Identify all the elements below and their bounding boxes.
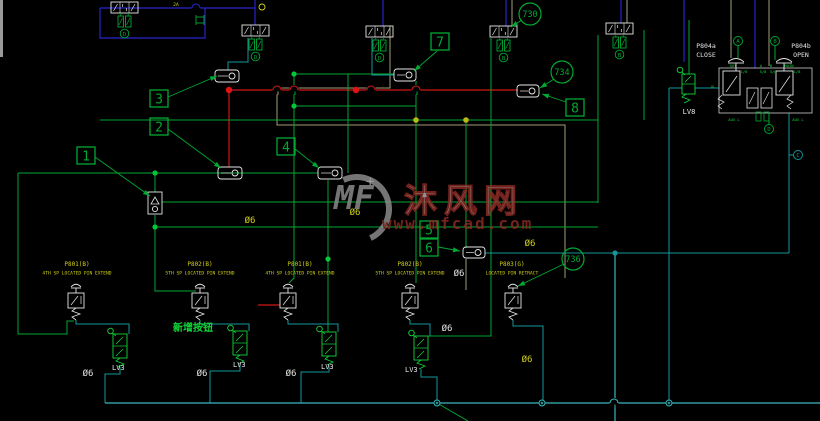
callout-leader xyxy=(168,129,221,168)
wire-segment xyxy=(369,28,373,35)
assembly-spring xyxy=(787,95,793,109)
callout-arrowhead xyxy=(312,162,319,168)
station-code: P802(B) xyxy=(187,261,212,268)
valve-port-letter: B xyxy=(618,53,622,59)
wire-tan-0 xyxy=(277,26,565,278)
assembly-port-label: AUX L xyxy=(728,117,740,122)
pushbutton-valve-body xyxy=(280,293,296,308)
station-description: 5TH SP LOCATED PIN EXTEND xyxy=(375,271,444,277)
pipe-diameter-label: Ø6 xyxy=(83,368,94,379)
note-new-button: 新增按钮 xyxy=(173,321,213,334)
pushbutton-cap xyxy=(283,284,293,287)
assembly-frame xyxy=(719,68,812,113)
wire-blue-0 xyxy=(100,8,205,38)
wire-segment xyxy=(262,27,266,34)
callout-number: 3 xyxy=(155,93,163,108)
callout-number: 2 xyxy=(155,121,163,136)
callout-number: 6 xyxy=(425,242,433,257)
port-letter: A xyxy=(736,39,740,45)
wire-segment xyxy=(245,27,249,34)
junction-dot-yellow xyxy=(413,117,419,123)
assembly-state: OPEN xyxy=(793,51,809,59)
junction-dot-bus-core xyxy=(541,402,543,404)
check-valve xyxy=(148,192,162,214)
solenoid-valve-body xyxy=(366,26,393,37)
wire-segment xyxy=(119,18,123,25)
wire-teal-0 xyxy=(228,38,248,70)
port-letter: B xyxy=(773,39,777,45)
wire-teal-14 xyxy=(410,320,430,336)
wire-segment xyxy=(682,72,685,75)
wire-segment xyxy=(493,28,497,35)
pushbutton-spring xyxy=(406,308,414,320)
station-description: 4TH SP LOCATED PIN EXTEND xyxy=(42,271,111,277)
assembly-code: P804b xyxy=(791,42,811,50)
callout-arrowhead xyxy=(453,247,460,252)
wire-segment xyxy=(498,42,502,49)
station-description: LOCATED PIN RETRACT xyxy=(486,271,539,277)
junction-dot-red xyxy=(353,87,359,93)
pneumatic-schematic: DDDBB2ALV3LV3LV3LV3LV8P804aCLOSEP804bOPE… xyxy=(0,0,820,421)
wire-teal-9 xyxy=(105,367,120,403)
pushbutton-spring xyxy=(196,308,204,320)
callout-arrowhead xyxy=(143,190,150,196)
callout-number: 4 xyxy=(282,141,290,156)
lv-pilot-circle xyxy=(677,67,683,73)
pipe-diameter-label: Ø6 xyxy=(525,238,536,249)
assembly-port-label: 5/8 xyxy=(760,69,768,74)
pushbutton-spring xyxy=(284,308,292,320)
wire-segment xyxy=(685,76,691,82)
pushbutton-cap xyxy=(405,284,415,287)
wire-segment xyxy=(508,296,515,305)
pushbutton-valve-body xyxy=(68,293,84,308)
assembly-port-label: MAIN xyxy=(784,63,794,68)
assembly-port-label: A xyxy=(760,63,763,68)
wire-teal-8 xyxy=(76,320,129,334)
inline-fitting-ball xyxy=(529,88,535,94)
lv-valve-tag: LV3 xyxy=(112,364,125,372)
pipe-diameter-label: Ø6 xyxy=(197,368,208,379)
station-code: P803(G) xyxy=(499,261,524,268)
pushbutton-cap xyxy=(71,284,81,287)
pushbutton-cap xyxy=(195,284,205,287)
callout-leader xyxy=(168,76,217,97)
wire-segment xyxy=(405,296,412,305)
pushbutton-valve-body xyxy=(192,293,208,308)
junction-dot-teal xyxy=(612,250,617,255)
assembly-port-label: B xyxy=(770,63,773,68)
wire-segment xyxy=(510,28,514,35)
wire-segment xyxy=(622,39,626,46)
station-description: 5TH SP LOCATED PIN EXTEND xyxy=(165,271,234,277)
junction-dot-green xyxy=(291,71,296,76)
wire-segment xyxy=(386,28,390,35)
station-code: P801(B) xyxy=(287,261,312,268)
assembly-port-label: 1/8 xyxy=(741,69,749,74)
solenoid-valve-body xyxy=(242,25,269,36)
assembly-state: CLOSE xyxy=(696,51,716,59)
pipe-diameter-label: Ø6 xyxy=(442,323,453,334)
wire-segment xyxy=(417,351,424,358)
wire-segment xyxy=(195,296,202,305)
pipe-diameter-label: Ø6 xyxy=(286,368,297,379)
junction-dot-green xyxy=(291,103,296,108)
pipe-diameter-label: Ø6 xyxy=(350,207,361,218)
wire-segment xyxy=(325,347,332,354)
lv-pilot-circle xyxy=(317,326,323,332)
callout-number: 730 xyxy=(522,10,537,20)
wire-green-14 xyxy=(18,173,74,334)
inline-fitting-ball xyxy=(406,72,412,78)
callout-arrowhead xyxy=(540,82,547,88)
callout-arrowhead xyxy=(518,281,525,286)
lv-valve-tag: LV8 xyxy=(683,108,696,116)
callout-number: 5 xyxy=(425,224,433,239)
junction-dot-green xyxy=(152,170,157,175)
check-valve-ball xyxy=(152,206,157,211)
wire-segment xyxy=(258,41,262,48)
junction-dot-bus-core xyxy=(668,402,670,404)
assembly-port-label: 1/8 xyxy=(794,69,802,74)
valve-port-letter: B xyxy=(502,56,506,62)
junction-dot-red xyxy=(226,87,232,93)
wire-segment xyxy=(127,18,131,25)
inline-fitting-ball xyxy=(475,250,481,256)
callout-arrowhead xyxy=(210,76,217,81)
callout-number: 736 xyxy=(565,255,580,265)
solenoid-valve-body xyxy=(490,26,517,37)
wire-segment xyxy=(236,346,243,353)
lv-pilot-circle xyxy=(228,325,234,331)
pushbutton-spring xyxy=(509,308,517,320)
assembly-port-label: AUX L xyxy=(792,117,804,122)
lv-pilot-circle xyxy=(108,328,114,334)
check-valve-arrow xyxy=(151,197,159,204)
wire-segment xyxy=(116,349,123,356)
callout-arrowhead xyxy=(214,162,221,168)
wire-segment xyxy=(779,76,790,92)
pushbutton-valve-body xyxy=(402,293,418,308)
port-letter: D xyxy=(767,127,770,133)
pipe-diameter-label: Ø6 xyxy=(454,268,465,279)
wire-segment xyxy=(283,296,290,305)
wire-segment xyxy=(614,39,618,46)
panel-edge xyxy=(0,0,3,57)
assembly-port-label: OUT xyxy=(730,63,738,68)
valve-port-letter: D xyxy=(254,55,257,61)
port-letter: C xyxy=(796,153,799,159)
wire-green-4 xyxy=(428,38,491,336)
pipe-diameter-label: Ø6 xyxy=(522,354,533,365)
pushbutton-valve-body xyxy=(505,293,521,308)
callout-number: 7 xyxy=(436,36,444,51)
pilot-cap xyxy=(728,59,744,63)
wire-segment xyxy=(382,42,386,49)
wire-segment xyxy=(236,334,243,341)
solenoid-valve-body xyxy=(606,23,633,34)
junction-dot-green xyxy=(325,256,330,261)
pilot-cap xyxy=(776,59,792,63)
assembly-valve xyxy=(723,71,740,95)
callout-number: 8 xyxy=(571,102,579,117)
inline-fitting-ball xyxy=(332,170,338,176)
assembly-valve xyxy=(776,71,793,95)
lv-valve-spring xyxy=(682,94,690,103)
assembly-mini-valve xyxy=(761,88,772,108)
lv-valve-tag: LV3 xyxy=(233,361,246,369)
wire-segment xyxy=(749,92,755,104)
wire-segment xyxy=(71,296,78,305)
wire-segment xyxy=(374,42,378,49)
wire-segment xyxy=(726,76,737,92)
callout-number: 1 xyxy=(82,150,90,165)
wire-segment xyxy=(325,335,332,342)
wire-segment xyxy=(609,25,613,32)
station-code: P801(B) xyxy=(64,261,89,268)
wire-teal-15 xyxy=(421,369,437,403)
inline-fitting-ball xyxy=(229,73,235,79)
wire-segment xyxy=(763,92,769,104)
lv-valve-tag: LV3 xyxy=(321,363,334,371)
yellow-ring-mark xyxy=(259,4,265,10)
wire-teal-11 xyxy=(210,364,240,403)
pushbutton-spring xyxy=(72,308,80,320)
station-description: 4TH SP LOCATED PIN EXTEND xyxy=(265,271,334,277)
lv-valve-spring xyxy=(417,360,425,369)
junction-dot-yellow xyxy=(463,117,469,123)
wire-segment xyxy=(417,339,424,346)
wire-green-18 xyxy=(437,403,468,421)
callout-leader xyxy=(95,157,150,196)
callout-arrowhead xyxy=(542,94,549,99)
assembly-port-label: GL xyxy=(711,84,716,89)
wire-segment xyxy=(626,25,630,32)
pipe-diameter-label: Ø6 xyxy=(245,215,256,226)
lv-pilot-circle xyxy=(409,330,415,336)
valve-port-letter: D xyxy=(378,56,381,62)
tiny-label: 2A xyxy=(173,2,179,8)
assembly-mini-valve xyxy=(747,88,758,108)
wire-segment xyxy=(116,337,123,344)
wire-green-13 xyxy=(155,215,196,291)
junction-dot-bus-core xyxy=(436,402,438,404)
wire-teal-12 xyxy=(288,320,338,332)
wire-segment xyxy=(506,42,510,49)
junction-dot-green xyxy=(152,224,157,229)
station-code: P802(B) xyxy=(397,261,422,268)
pushbutton-cap xyxy=(508,284,518,287)
lv-valve-tag: LV3 xyxy=(405,366,418,374)
callout-number: 734 xyxy=(554,68,569,78)
assembly-code: P804a xyxy=(696,42,716,50)
drawing-canvas[interactable]: DDDBB2ALV3LV3LV3LV3LV8P804aCLOSEP804bOPE… xyxy=(0,0,820,421)
assembly-port-label: 3/8 xyxy=(770,69,778,74)
valve-port-letter: D xyxy=(123,32,126,38)
wire-segment xyxy=(250,41,254,48)
